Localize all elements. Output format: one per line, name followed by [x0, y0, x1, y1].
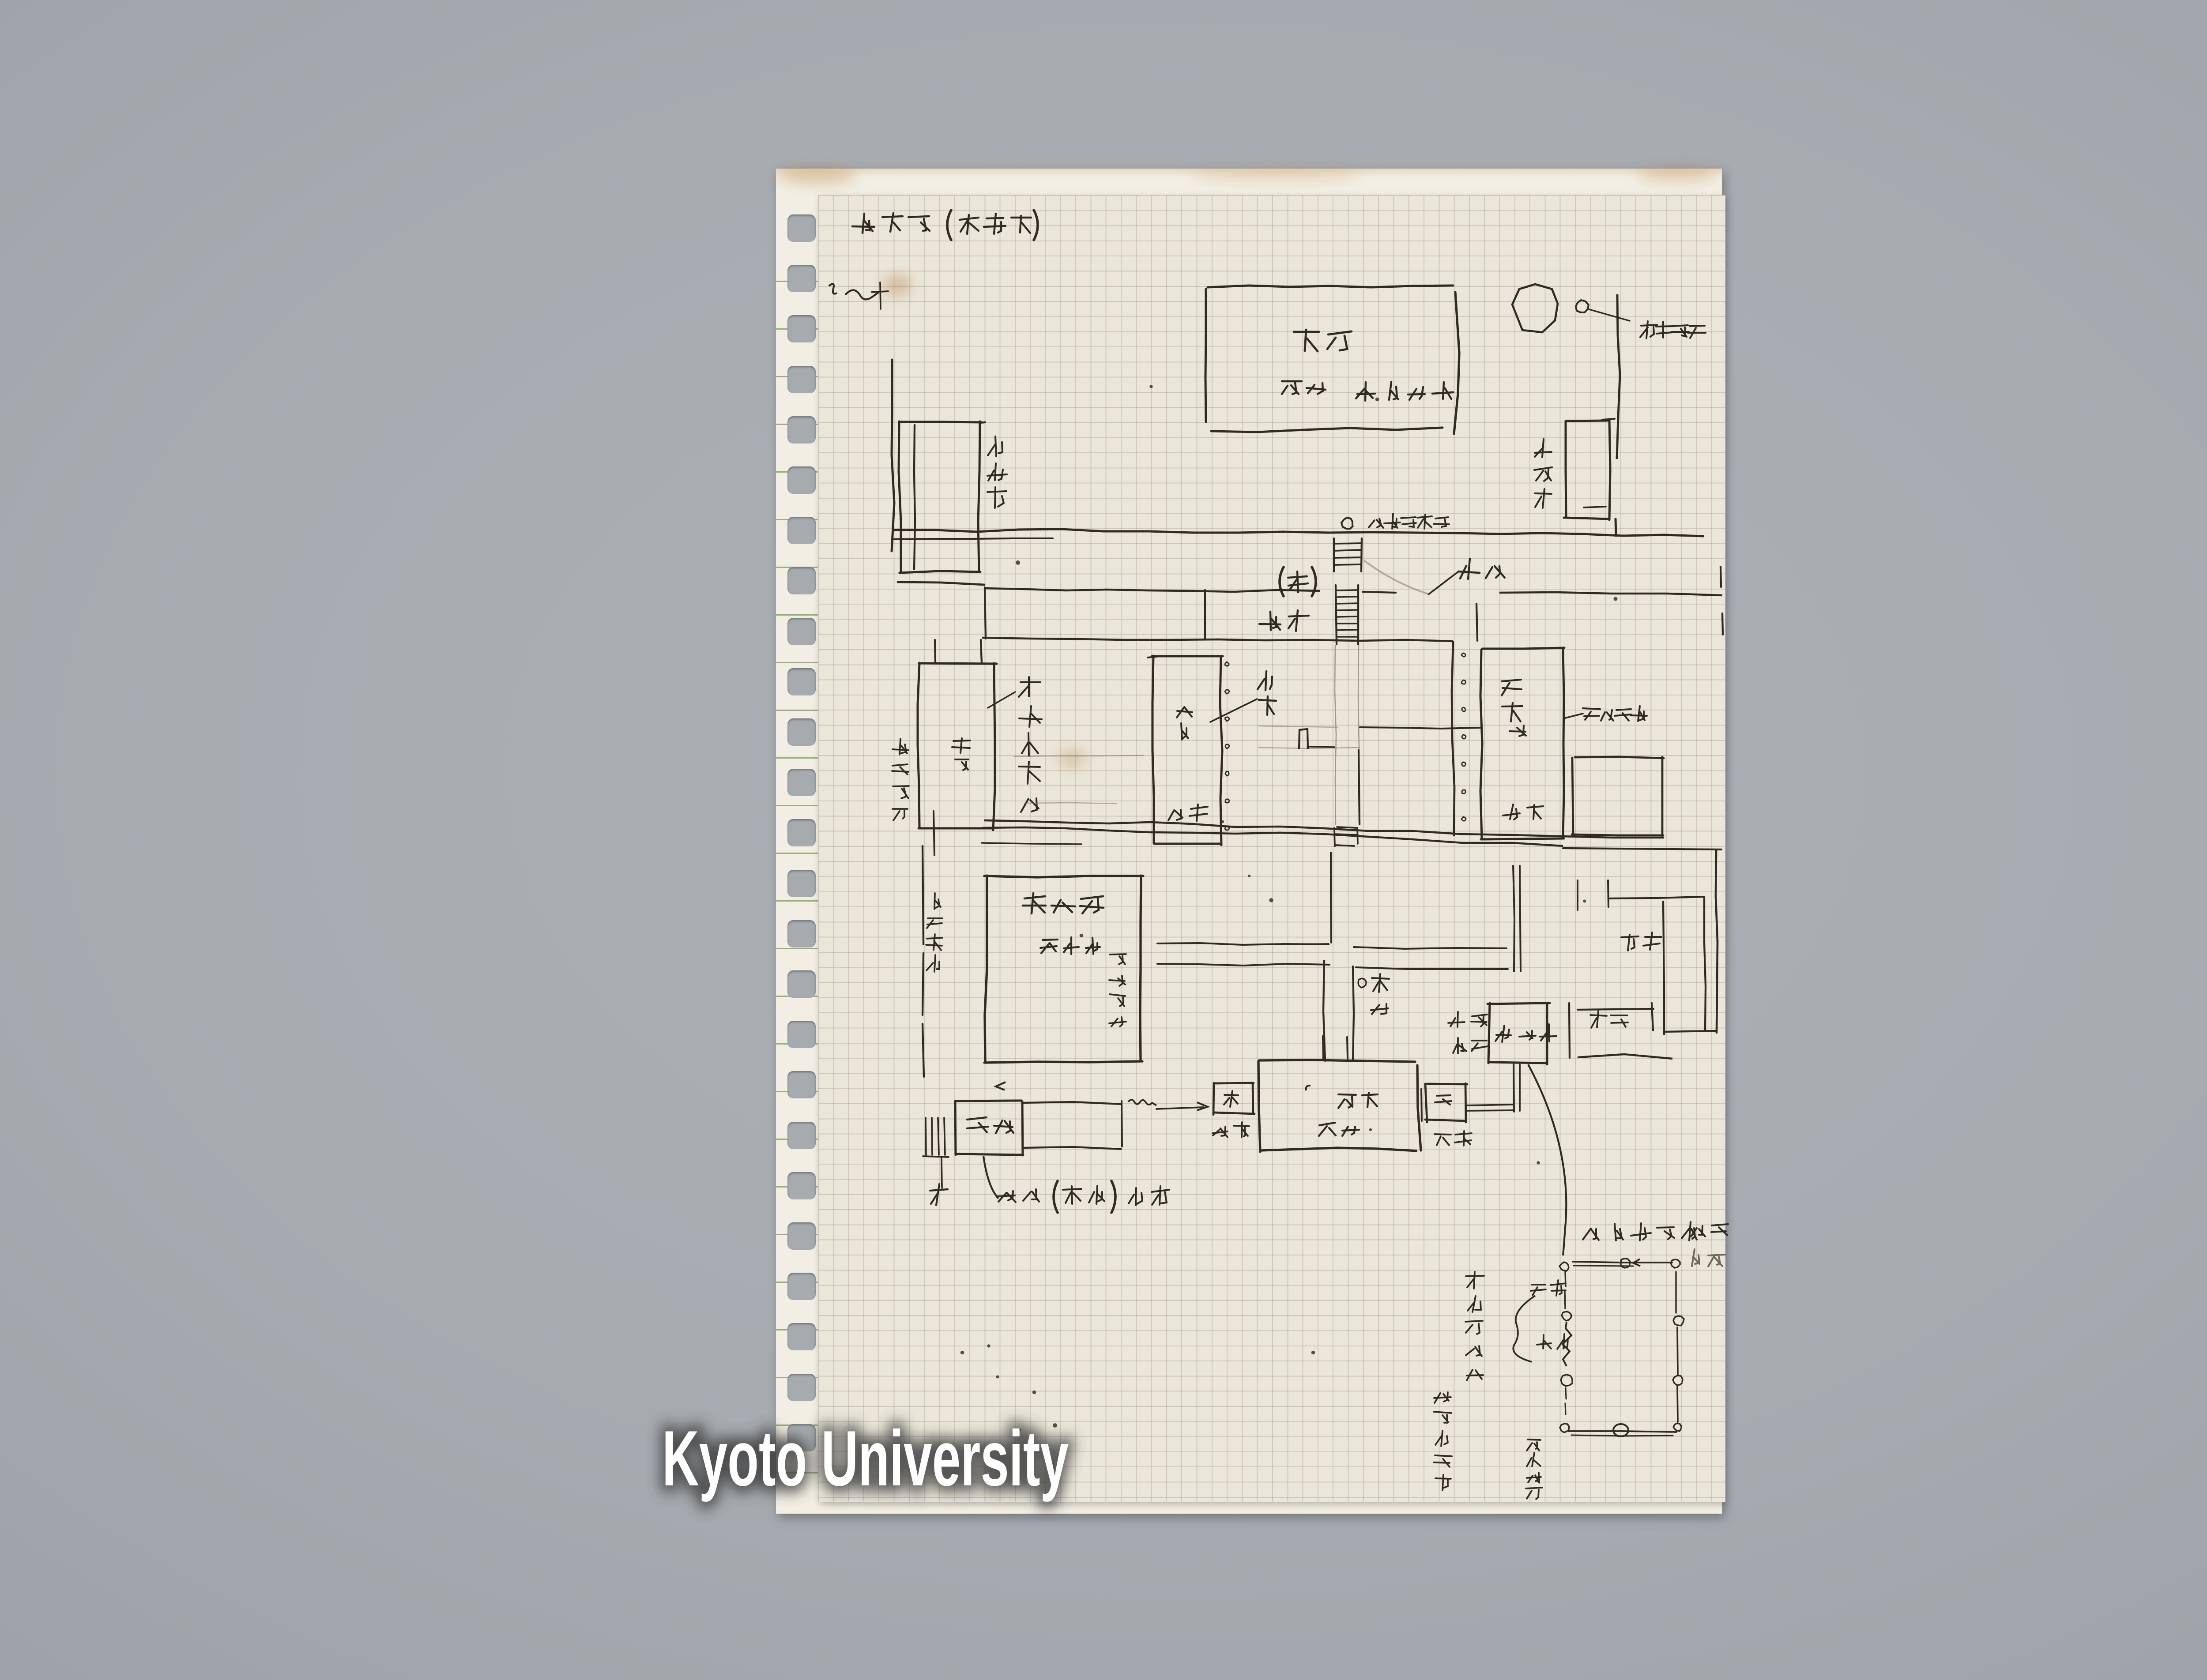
- svg-text:Kyoto University: Kyoto University: [662, 1414, 1069, 1502]
